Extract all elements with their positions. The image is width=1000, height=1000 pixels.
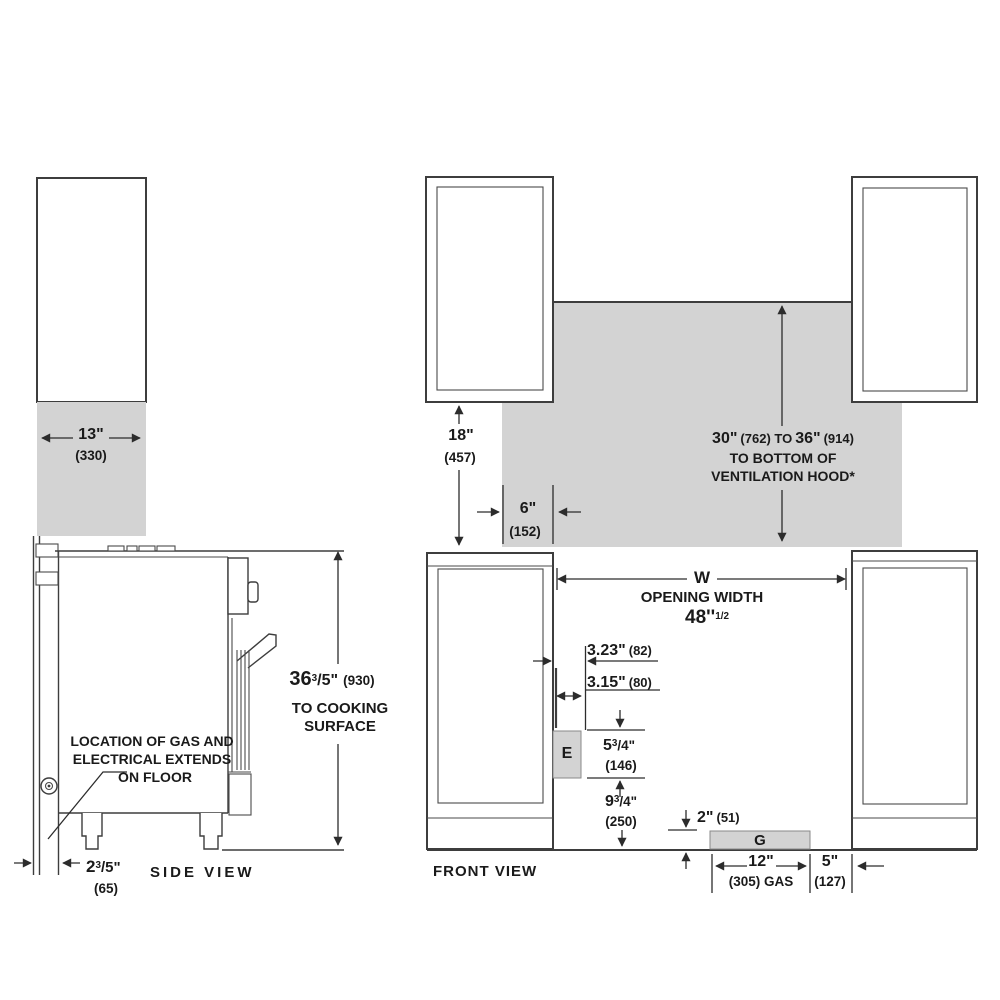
- dim-315-label: 3.15"(80): [587, 675, 652, 691]
- dim-534-mm: (146): [605, 759, 637, 773]
- hood-clearance-shading: [502, 302, 902, 547]
- hood-min-in: 30": [712, 430, 737, 447]
- dim-323-mm: (82): [629, 643, 652, 658]
- dim-934-frac: /4": [619, 794, 637, 809]
- dim-6in-label: 6": [520, 501, 536, 517]
- dim-323-label: 3.23"(82): [587, 643, 652, 659]
- dim-6in-mm: (152): [509, 525, 541, 539]
- dim-cooking-height-label: 363/5"(930): [289, 669, 374, 689]
- gas-box-label: G: [754, 833, 766, 848]
- dim-18in-label: 18": [448, 428, 473, 444]
- front-upper-cabinet-left-panel: [437, 187, 543, 390]
- dim-5in-label: 5": [822, 854, 838, 870]
- dim-13in-value: 13": [78, 426, 103, 443]
- dim-323-value: 3.23": [587, 642, 626, 659]
- gas-height-mm: (51): [716, 810, 739, 825]
- dim-934-label: 93/4": [605, 794, 637, 810]
- range-side-profile: [41, 546, 344, 850]
- side-depth-shading: [37, 402, 146, 536]
- hood-clearance-line1: 30"(762) TO36"(914): [712, 431, 854, 447]
- electrical-box-label: E: [562, 746, 573, 762]
- front-leg: [82, 813, 102, 849]
- dim-934-base: 9: [605, 793, 614, 810]
- door-handle: [237, 634, 276, 668]
- cooking-height-mm: (930): [343, 673, 375, 688]
- dim-12in-mm: (305) GAS: [729, 875, 794, 889]
- control-knob: [248, 582, 258, 602]
- dim-gas-height: [668, 810, 697, 869]
- dim-12in-label: 12": [748, 854, 773, 870]
- dim-534-frac: /4": [617, 738, 635, 753]
- hood-clearance-line2: TO BOTTOM OF: [730, 451, 837, 465]
- dim-315-value: 3.15": [587, 674, 626, 691]
- hood-clearance-line3: VENTILATION HOOD*: [711, 469, 855, 483]
- rear-gap-frac: /5": [101, 859, 121, 876]
- dim-534-label: 53/4": [603, 738, 635, 754]
- dim-5in-mm: (127): [814, 875, 846, 889]
- wall-lines: [34, 536, 59, 875]
- hood-max-in: 36": [795, 430, 820, 447]
- dim-rear-gap-label: 23/5": [86, 858, 121, 876]
- opening-width-frac: 1/2: [715, 611, 729, 622]
- dim-13in-mm: (330): [75, 449, 107, 463]
- diagram-linework: [0, 0, 1000, 1000]
- hood-max-mm: (914): [824, 431, 854, 446]
- opening-width-number: 48'': [685, 607, 715, 628]
- installation-diagram: 13" (330) 363/5"(930) TO COOKING SURFACE…: [0, 0, 1000, 1000]
- rear-spacer-bottom: [36, 572, 58, 585]
- front-lower-cabinet-left: [427, 553, 553, 849]
- gas-note-line1: LOCATION OF GAS AND: [70, 734, 233, 748]
- front-lower-cabinet-right: [852, 551, 977, 849]
- cooking-height-line3: SURFACE: [304, 719, 376, 734]
- dim-934-sup: 3: [614, 794, 620, 805]
- opening-width-symbol: W: [694, 569, 710, 586]
- cooking-height-frac: /5": [317, 672, 338, 689]
- opening-width-label: OPENING WIDTH: [641, 590, 764, 605]
- opening-width-value: 48''1/2: [685, 608, 729, 627]
- cooking-height-base: 36: [289, 668, 311, 690]
- rear-gap-sup: 3: [95, 860, 101, 871]
- front-view-title: FRONT VIEW: [433, 864, 537, 879]
- hood-min-mm: (762) TO: [740, 431, 792, 446]
- dim-13in-label: 13": [78, 427, 103, 443]
- cooking-height-sup: 3: [312, 673, 318, 684]
- dim-gas-height-label: 2"(51): [697, 810, 740, 826]
- lower-drawer: [229, 774, 251, 815]
- cooking-height-line2: TO COOKING: [292, 701, 388, 716]
- side-upper-cabinet: [37, 178, 146, 402]
- side-view-title: SIDE VIEW: [150, 865, 255, 880]
- rear-spacer-top: [36, 544, 58, 557]
- gas-height-value: 2": [697, 809, 713, 826]
- gas-note-line3: ON FLOOR: [118, 770, 192, 784]
- dim-534-sup: 3: [612, 738, 618, 749]
- dim-934-mm: (250): [605, 815, 637, 829]
- dim-18in-mm: (457): [444, 451, 476, 465]
- dim-534-base: 5: [603, 737, 612, 754]
- front-upper-cabinet-right-panel: [863, 188, 967, 391]
- gas-note-line2: ELECTRICAL EXTENDS: [73, 752, 231, 766]
- dim-315-mm: (80): [629, 675, 652, 690]
- dim-rear-gap-mm: (65): [94, 882, 118, 896]
- rear-leg: [200, 813, 222, 849]
- control-panel: [228, 558, 248, 614]
